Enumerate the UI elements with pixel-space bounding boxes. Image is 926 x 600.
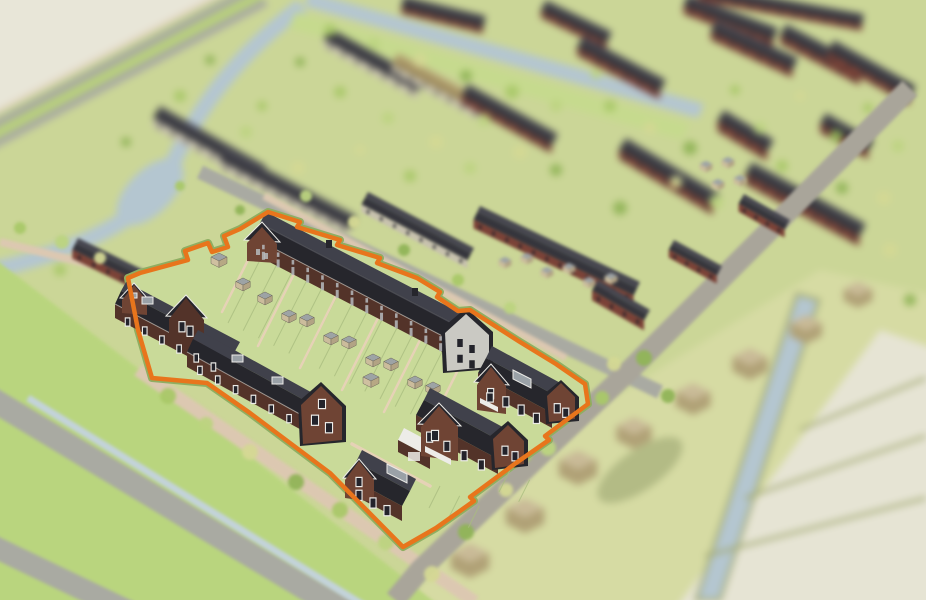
garage-door xyxy=(408,452,420,461)
site-plan-render xyxy=(0,0,926,600)
roof-window xyxy=(272,377,283,384)
roof-window xyxy=(142,297,153,304)
aerial-development-render xyxy=(0,0,926,600)
roof-window xyxy=(232,355,243,362)
